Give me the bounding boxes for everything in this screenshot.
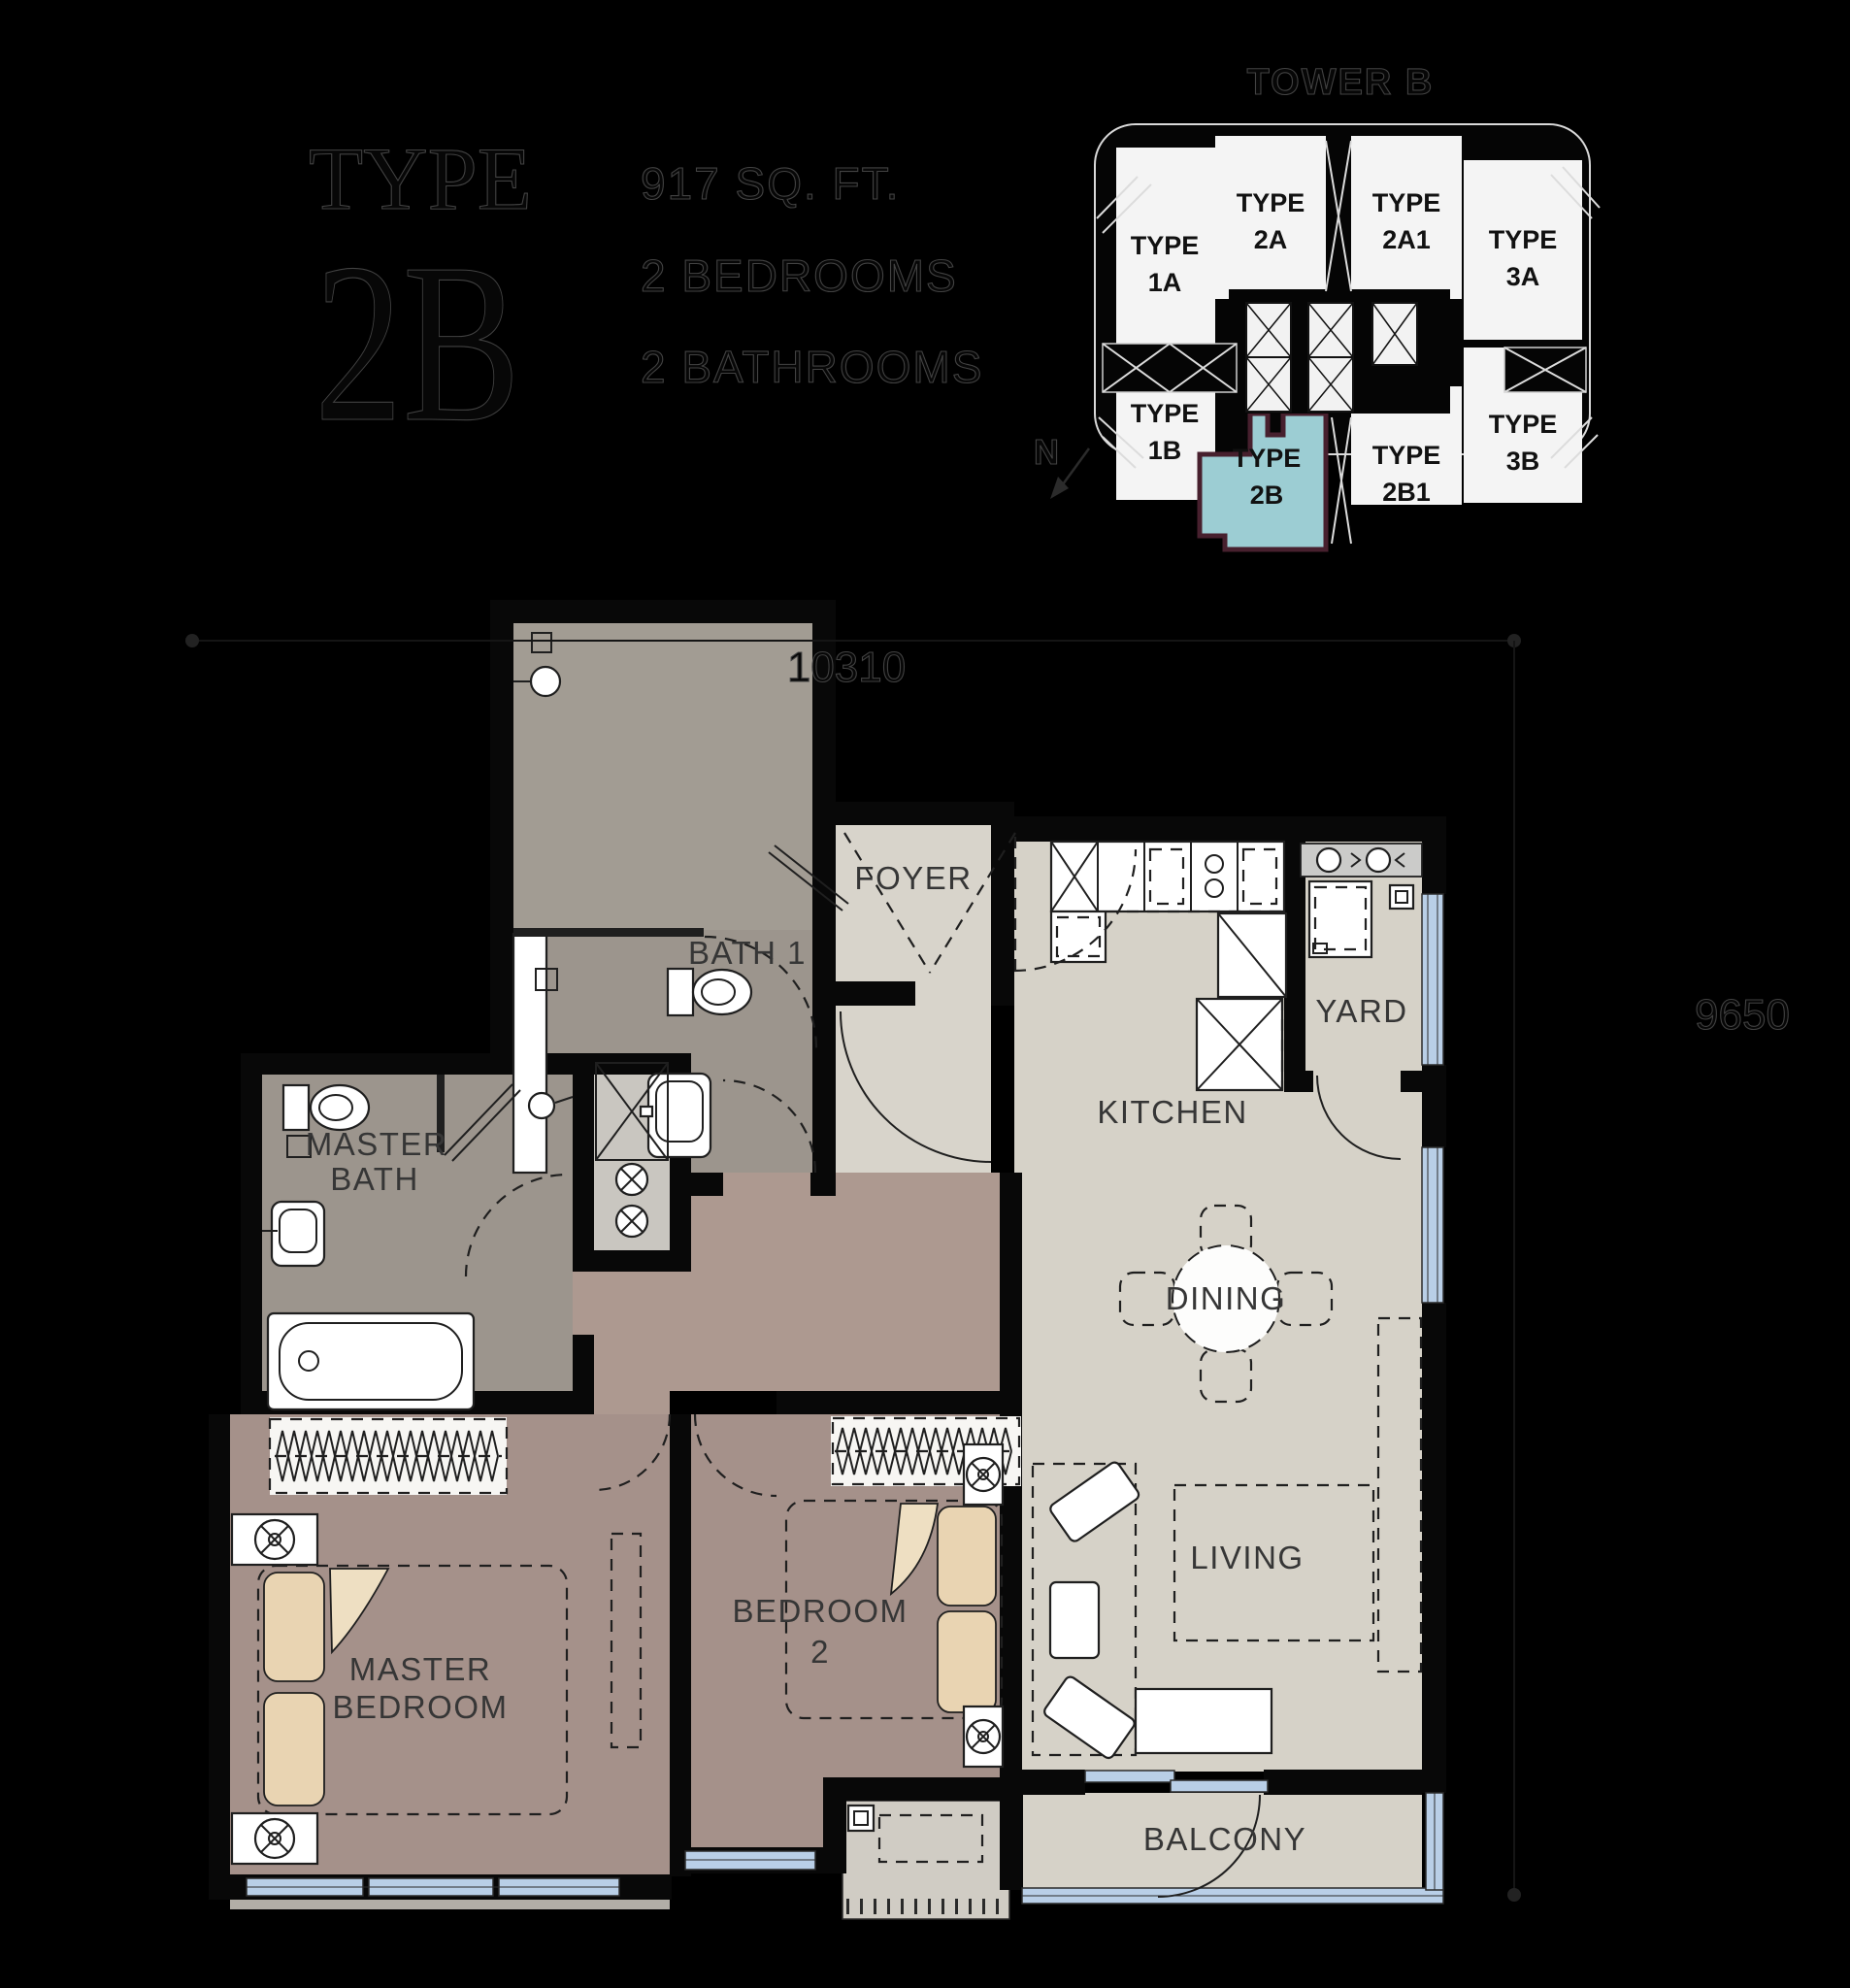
pillow [264,1573,324,1681]
key-plan: TOWER B [1034,62,1600,549]
pillow [938,1507,996,1606]
unit-label-2B1-2: 2B1 [1382,478,1431,507]
unit-label-3B-1: TYPE [1489,410,1558,439]
wall-segment [490,600,513,1061]
ac-niche [964,1444,1003,1505]
unit-2A [1215,136,1326,299]
sliding-door-balcony [1085,1771,1268,1792]
key-plan-title: TOWER B [1247,62,1435,103]
unit-label-2A-1: TYPE [1237,188,1305,217]
floor-yard-hall [1284,1092,1422,1192]
ac-fan-icon [616,1206,647,1237]
floor-corridor [670,1173,1000,1391]
pillow [264,1693,324,1806]
unit-label-2B-1: TYPE [1233,444,1302,473]
wall-segment [1401,1071,1422,1092]
unit-2A1 [1351,136,1462,299]
floor-bath1-shower-zone [513,621,812,930]
wall-segment [1000,1770,1023,1890]
title-type-label: TYPE [309,129,532,228]
floor-yard [1305,840,1422,1092]
window-yard [1422,894,1443,1065]
unit-label-1B-2: 1B [1148,436,1182,465]
ac-niche [232,1514,317,1565]
toilet-icon [668,969,751,1015]
wall-segment [1422,816,1446,894]
window-sill [230,1900,670,1909]
label-yard: YARD [1315,993,1407,1029]
label-master-bedroom-2: BEDROOM [332,1689,508,1725]
laundry-sink-icon [1301,844,1422,877]
label-master-bath-1: MASTER [306,1126,448,1162]
label-kitchen: KITCHEN [1097,1094,1247,1130]
wall-segment [991,816,1446,842]
unit-label-2A1-1: TYPE [1372,188,1441,217]
ac-fan-icon [616,1164,647,1195]
dimension-width-label: 10310 [787,644,906,691]
wall-segment [691,1173,723,1196]
window-master-bedroom [230,1878,670,1909]
unit-label-3B-2: 3B [1506,447,1540,476]
floorplan-sheet: TYPE 2B 917 SQ. FT. 2 BEDROOMS 2 BATHROO… [0,0,1850,1988]
north-label: N [1034,432,1059,472]
wall-segment [776,1391,1022,1414]
fridge-icon [1218,913,1286,997]
wall-segment [823,1777,1023,1801]
title-area: 917 SQ. FT. [641,158,900,209]
coffee-table [1136,1689,1272,1753]
title-block: TYPE 2B 917 SQ. FT. 2 BEDROOMS 2 BATHROO… [309,129,983,469]
label-foyer: FOYER [854,860,972,896]
wall-segment [823,1801,846,1873]
kitchen-island [1197,999,1282,1090]
unit-label-2B-2: 2B [1250,480,1284,510]
ac-niche [964,1706,1003,1767]
wall-segment [1422,1065,1446,1147]
label-master-bedroom-1: MASTER [349,1651,492,1687]
unit-label-3A-1: TYPE [1489,225,1558,254]
wall-segment [573,1053,594,1272]
pillow [938,1611,996,1712]
title-bedrooms: 2 BEDROOMS [641,250,958,301]
unit-label-3A-2: 3A [1506,262,1540,291]
lift-shaft-icon [1308,303,1353,412]
unit-label-2B1-1: TYPE [1372,441,1441,470]
unit-label-1A-1: TYPE [1131,231,1200,260]
wall-segment [670,1414,691,1876]
fan-icon [967,1720,1000,1753]
fan-icon [255,1819,294,1858]
wall-segment [991,802,1014,1006]
label-dining: DINING [1166,1280,1287,1316]
wall-segment [1284,1071,1313,1092]
wall-segment [1422,1303,1446,1793]
unit-label-2A-2: 2A [1254,225,1288,254]
window-bedroom2 [685,1851,815,1870]
wall-segment [1264,1770,1422,1795]
wall-segment [241,1053,262,1414]
label-master-bath-2: BATH [330,1161,419,1197]
fan-icon [255,1520,294,1559]
unit-label-2A1-2: 2A1 [1382,225,1431,254]
window-dining [1422,1147,1443,1303]
wall-segment [1000,1173,1022,1414]
lift-shaft-icon [1372,303,1417,365]
key-plan-core [1229,289,1450,414]
label-bedroom2-1: BEDROOM [732,1593,908,1629]
label-bedroom2-2: 2 [810,1634,830,1670]
label-living: LIVING [1190,1540,1304,1575]
floor-trap-icon [1390,885,1413,909]
dimension-height-label: 9650 [1695,991,1790,1039]
wall-segment [573,1335,594,1393]
fan-icon [967,1458,1000,1491]
shower-divider [513,928,704,937]
title-type-value: 2B [314,216,520,469]
unit-label-1A-2: 1A [1148,268,1182,297]
wall-segment [490,600,836,623]
sink-icon [262,1202,324,1266]
title-bathrooms: 2 BATHROOMS [641,342,983,392]
wall-segment [209,1414,230,1900]
floor-plan: FOYER BATH 1 KITCHEN YARD DINING LIVING … [185,600,1790,1919]
wall-segment [812,802,1014,825]
unit-label-1B-1: TYPE [1131,399,1200,428]
label-bath1: BATH 1 [688,935,807,971]
lift-shaft-icon [1246,303,1291,412]
bathtub-icon [268,1313,474,1409]
washer-icon [1309,881,1371,957]
wardrobe-master [270,1417,507,1495]
ac-niche [232,1813,317,1864]
label-balcony: BALCONY [1143,1821,1306,1857]
wall-segment [810,1173,836,1196]
floorplan-canvas: TYPE 2B 917 SQ. FT. 2 BEDROOMS 2 BATHROO… [0,0,1850,1988]
north-arrow-icon: N [1034,432,1089,499]
wall-segment [836,981,915,1006]
